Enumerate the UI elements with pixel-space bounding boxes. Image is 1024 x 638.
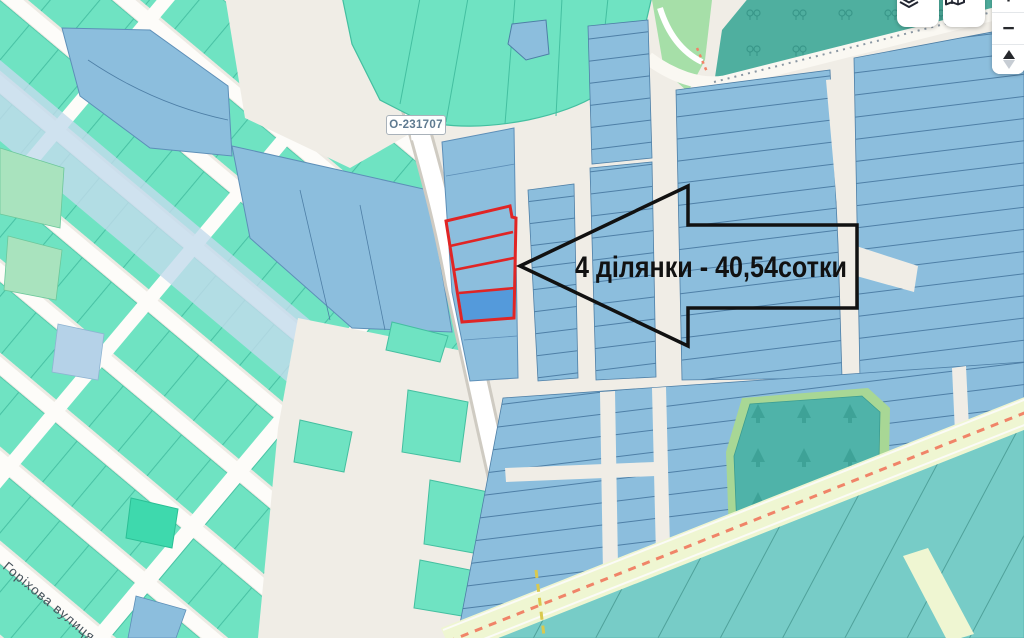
map-viewport[interactable]: Горіхова вулиця <box>0 0 1024 638</box>
annotation-text: 4 ділянки - 40,54сотки <box>575 251 847 284</box>
layers-button[interactable] <box>897 0 939 27</box>
zoom-in-button[interactable]: + <box>992 0 1024 12</box>
map-location-button[interactable] <box>943 0 985 27</box>
road-number-label: О-231707 <box>386 115 446 135</box>
compass-up-icon <box>1003 50 1015 59</box>
zoom-control: + − <box>992 0 1024 74</box>
zoom-out-button[interactable]: − <box>992 13 1024 44</box>
compass-down-icon <box>1003 60 1015 69</box>
compass-button[interactable] <box>992 45 1024 74</box>
map-canvas[interactable]: Горіхова вулиця <box>0 0 1024 638</box>
